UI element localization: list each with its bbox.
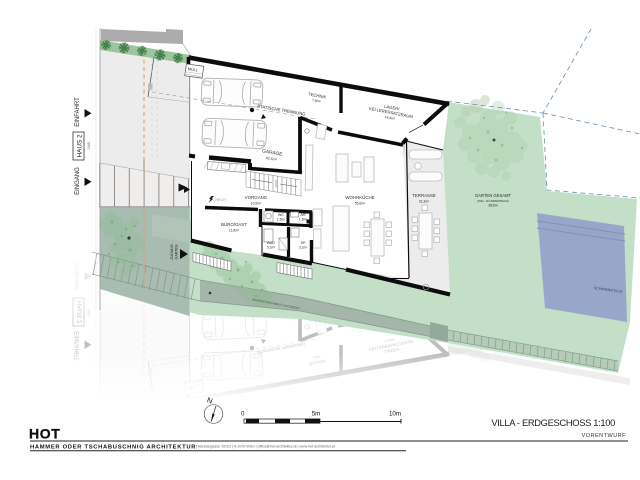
svg-text:0: 0 — [241, 411, 245, 418]
svg-text:HOT: HOT — [29, 426, 60, 442]
svg-text:| Neubaugasse 10/1/2 | A: | Neubaugasse 10/1/2 | A-1070 Wien | off… — [196, 445, 335, 449]
svg-text:VILLA - ERDGESCHOSS 1:100: VILLA - ERDGESCHOSS 1:100 — [491, 417, 615, 428]
svg-text:10m: 10m — [389, 411, 401, 418]
svg-text:5m: 5m — [312, 411, 321, 418]
svg-text:HAMMER ODER TSCHABUSCHNIG ARCH: HAMMER ODER TSCHABUSCHNIG ARCHITEKTUR — [30, 445, 196, 451]
svg-text:VORENTWURF: VORENTWURF — [582, 433, 627, 439]
